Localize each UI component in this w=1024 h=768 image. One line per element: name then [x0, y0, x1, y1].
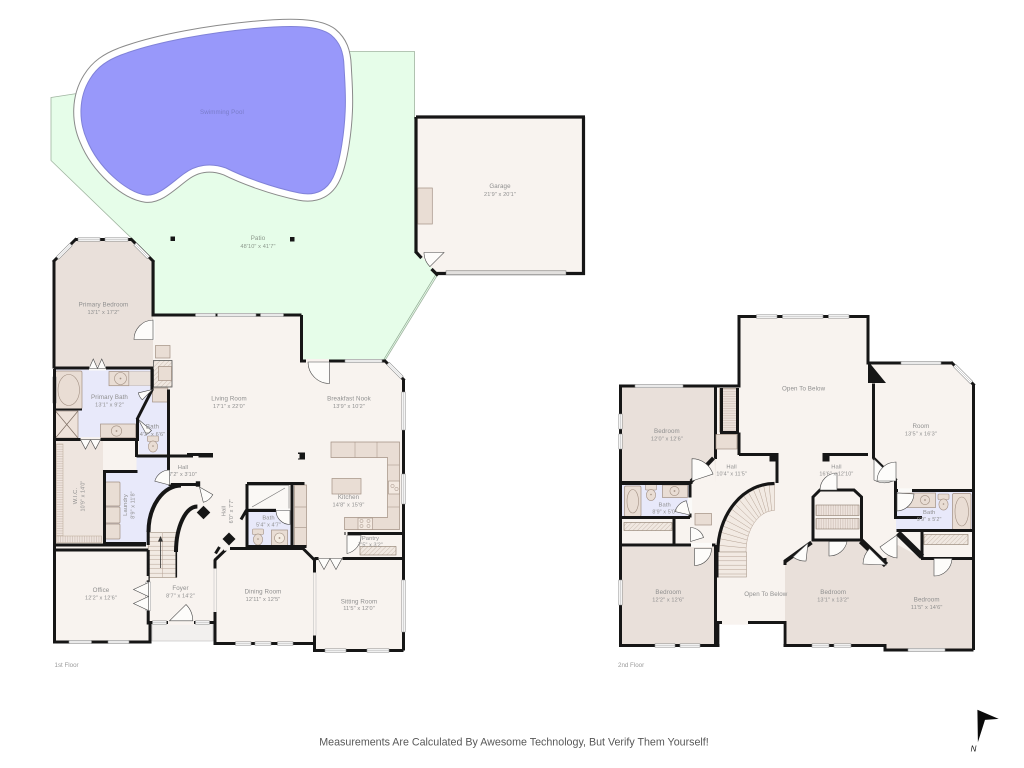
svg-text:12'0" x 12'6": 12'0" x 12'6": [651, 437, 683, 443]
svg-text:8'9" x 11'8": 8'9" x 11'8": [131, 491, 137, 518]
svg-text:4'2" x 6'6": 4'2" x 6'6": [140, 432, 166, 438]
svg-text:Bath: Bath: [146, 424, 160, 431]
svg-text:Bedroom: Bedroom: [914, 597, 940, 604]
svg-text:Measurements Are Calculated By: Measurements Are Calculated By Awesome T…: [319, 737, 709, 749]
svg-text:W.I.C.: W.I.C.: [73, 488, 79, 505]
svg-text:7'5" x 3'2": 7'5" x 3'2": [358, 543, 383, 549]
svg-text:Laundry: Laundry: [123, 494, 129, 516]
svg-text:Living Room: Living Room: [211, 396, 247, 403]
svg-text:N: N: [971, 745, 977, 754]
svg-text:Breakfast Nook: Breakfast Nook: [327, 396, 372, 403]
svg-text:Pantry: Pantry: [362, 536, 379, 542]
svg-text:Foyer: Foyer: [172, 585, 188, 592]
svg-text:Open To Below: Open To Below: [782, 386, 826, 393]
svg-text:13'1" x 17'2": 13'1" x 17'2": [88, 310, 120, 316]
svg-text:21'9" x 20'1": 21'9" x 20'1": [484, 192, 516, 198]
svg-text:Open To Below: Open To Below: [744, 591, 788, 598]
svg-text:16'6" x 12'10": 16'6" x 12'10": [819, 472, 853, 478]
svg-text:Hall: Hall: [726, 465, 736, 471]
svg-text:9'9" x 5'2": 9'9" x 5'2": [917, 517, 942, 523]
svg-text:Bath: Bath: [262, 516, 274, 522]
svg-text:Office: Office: [93, 587, 110, 594]
svg-text:Sitting Room: Sitting Room: [341, 599, 378, 606]
svg-text:12'2" x 12'6": 12'2" x 12'6": [85, 596, 117, 602]
svg-text:13'1" x 9'2": 13'1" x 9'2": [95, 403, 124, 409]
svg-text:7'2" x 3'10": 7'2" x 3'10": [169, 472, 197, 478]
svg-text:8'9" x 5'0": 8'9" x 5'0": [652, 510, 677, 516]
svg-text:Hall: Hall: [222, 506, 228, 516]
svg-text:Bedroom: Bedroom: [654, 428, 680, 435]
svg-text:Bath: Bath: [659, 503, 671, 509]
svg-text:8'7" x 14'2": 8'7" x 14'2": [166, 594, 195, 600]
svg-text:13'5" x 16'3": 13'5" x 16'3": [905, 432, 937, 438]
svg-text:13'9" x 10'2": 13'9" x 10'2": [333, 404, 365, 410]
svg-text:Kitchen: Kitchen: [338, 494, 360, 501]
svg-text:Patio: Patio: [251, 235, 266, 242]
svg-text:2nd Floor: 2nd Floor: [618, 662, 644, 669]
svg-text:Hall: Hall: [831, 465, 841, 471]
svg-text:48'10" x 41'7": 48'10" x 41'7": [240, 244, 275, 250]
svg-text:10'9" x 14'0": 10'9" x 14'0": [81, 481, 87, 512]
svg-text:12'2" x 12'6": 12'2" x 12'6": [652, 598, 684, 604]
svg-text:6'0" x 7'7": 6'0" x 7'7": [229, 499, 235, 524]
svg-text:Swimming Pool: Swimming Pool: [200, 109, 244, 116]
svg-text:17'1" x 22'0": 17'1" x 22'0": [213, 404, 245, 410]
svg-text:5'4" x 4'7": 5'4" x 4'7": [256, 523, 281, 529]
svg-text:Dining Room: Dining Room: [245, 589, 282, 596]
svg-text:Bath: Bath: [923, 510, 935, 516]
svg-text:14'8" x 15'9": 14'8" x 15'9": [333, 503, 365, 509]
svg-text:12'11" x 12'5": 12'11" x 12'5": [246, 597, 281, 603]
svg-text:Bedroom: Bedroom: [820, 589, 846, 596]
svg-text:Garage: Garage: [489, 183, 511, 190]
svg-text:Primary Bath: Primary Bath: [91, 394, 128, 401]
svg-text:11'5" x 12'0": 11'5" x 12'0": [343, 606, 375, 612]
svg-text:1st Floor: 1st Floor: [55, 662, 79, 669]
svg-text:Primary Bedroom: Primary Bedroom: [79, 302, 129, 309]
svg-text:10'4" x 11'5": 10'4" x 11'5": [716, 472, 746, 478]
svg-text:13'1" x 13'2": 13'1" x 13'2": [817, 598, 849, 604]
svg-text:Hall: Hall: [178, 465, 188, 471]
svg-text:Bedroom: Bedroom: [655, 589, 681, 596]
svg-text:Room: Room: [912, 423, 929, 430]
svg-text:11'5" x 14'6": 11'5" x 14'6": [911, 605, 943, 611]
